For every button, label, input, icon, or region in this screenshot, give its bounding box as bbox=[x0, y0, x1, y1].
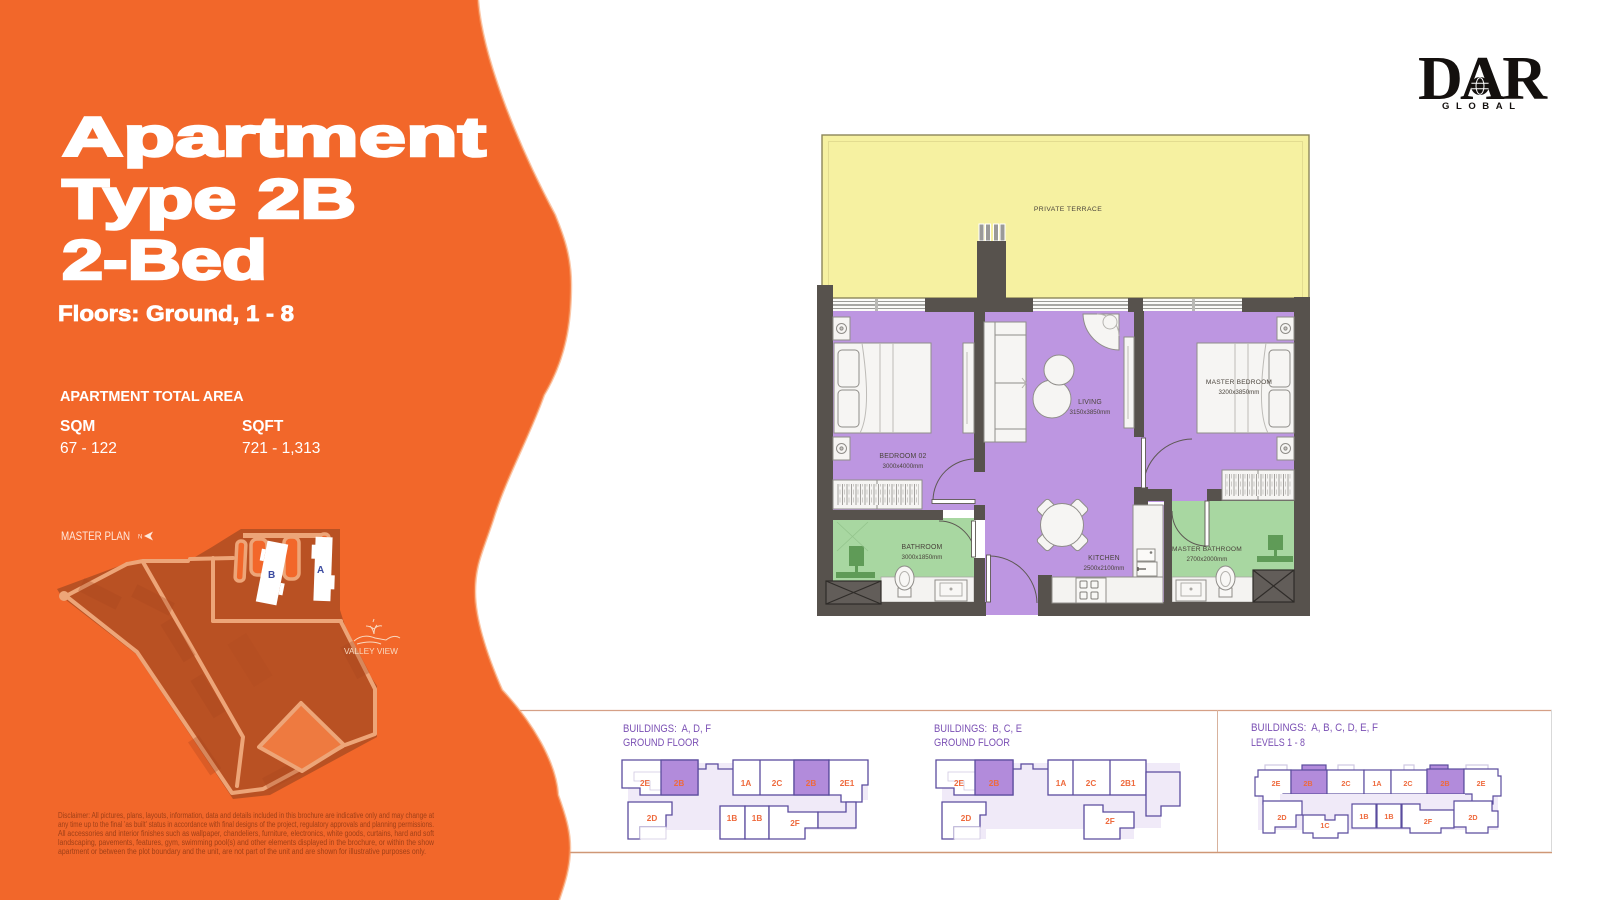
svg-text:LEVELS 1 - 8: LEVELS 1 - 8 bbox=[1251, 737, 1305, 749]
svg-text:2700x2000mm: 2700x2000mm bbox=[1187, 556, 1228, 563]
svg-text:VALLEY VIEW: VALLEY VIEW bbox=[344, 646, 398, 656]
svg-text:2D: 2D bbox=[1468, 813, 1477, 822]
svg-text:721 - 1,313: 721 - 1,313 bbox=[242, 440, 320, 457]
svg-text:1B: 1B bbox=[1384, 812, 1393, 821]
svg-text:BUILDINGS: A, D, F: BUILDINGS: A, D, F bbox=[623, 723, 711, 735]
svg-text:GROUND FLOOR: GROUND FLOOR bbox=[934, 737, 1010, 749]
svg-text:BATHROOM: BATHROOM bbox=[902, 544, 943, 551]
svg-text:1B: 1B bbox=[1359, 812, 1368, 821]
svg-text:BUILDINGS: A, B, C, D, E, F: BUILDINGS: A, B, C, D, E, F bbox=[1251, 722, 1378, 734]
svg-text:2500x2100mm: 2500x2100mm bbox=[1084, 565, 1125, 572]
svg-text:2E: 2E bbox=[640, 779, 651, 788]
svg-text:apartment or between the plot: apartment or between the plot boundary a… bbox=[58, 847, 426, 856]
svg-text:any time up to the final 'as b: any time up to the final 'as built' stat… bbox=[58, 820, 434, 829]
svg-text:MASTER BEDROOM: MASTER BEDROOM bbox=[1206, 379, 1272, 386]
svg-text:BUILDINGS: B, C, E: BUILDINGS: B, C, E bbox=[934, 723, 1022, 735]
svg-text:1C: 1C bbox=[1320, 821, 1329, 830]
svg-text:MASTER PLAN: MASTER PLAN bbox=[61, 529, 130, 543]
svg-text:MASTER BATHROOM: MASTER BATHROOM bbox=[1172, 546, 1242, 553]
svg-text:67 - 122: 67 - 122 bbox=[60, 440, 117, 457]
svg-text:SQFT: SQFT bbox=[242, 418, 284, 435]
svg-text:BEDROOM 02: BEDROOM 02 bbox=[879, 453, 926, 460]
svg-text:2F: 2F bbox=[1105, 817, 1115, 826]
svg-text:KITCHEN: KITCHEN bbox=[1088, 555, 1120, 562]
svg-text:B: B bbox=[268, 570, 275, 581]
svg-text:Type 2B: Type 2B bbox=[62, 167, 356, 230]
svg-text:3150x3850mm: 3150x3850mm bbox=[1070, 409, 1111, 416]
svg-text:LIVING: LIVING bbox=[1078, 399, 1102, 406]
svg-text:3200x3850mm: 3200x3850mm bbox=[1219, 389, 1260, 396]
svg-text:2C: 2C bbox=[1341, 779, 1350, 788]
svg-text:2E1: 2E1 bbox=[840, 779, 855, 788]
svg-text:2E: 2E bbox=[954, 779, 965, 788]
svg-text:2B: 2B bbox=[806, 779, 817, 788]
svg-text:1A: 1A bbox=[741, 779, 752, 788]
svg-text:Apartment: Apartment bbox=[62, 105, 486, 168]
svg-text:2F: 2F bbox=[790, 819, 800, 828]
svg-text:N: N bbox=[138, 535, 142, 541]
svg-text:2E: 2E bbox=[1477, 779, 1486, 788]
svg-text:2D: 2D bbox=[961, 814, 972, 823]
svg-text:1B: 1B bbox=[727, 814, 738, 823]
svg-text:2B: 2B bbox=[989, 779, 1000, 788]
svg-text:2C: 2C bbox=[772, 779, 783, 788]
svg-text:Floors: Ground, 1 - 8: Floors: Ground, 1 - 8 bbox=[58, 301, 294, 326]
svg-text:3000x4000mm: 3000x4000mm bbox=[883, 463, 924, 470]
svg-text:2B1: 2B1 bbox=[1120, 779, 1135, 788]
svg-text:Disclaimer: All pictures, plan: Disclaimer: All pictures, plans, layouts… bbox=[58, 811, 435, 820]
svg-text:All accessories and interior f: All accessories and interior finishes su… bbox=[58, 829, 435, 838]
svg-text:2-Bed: 2-Bed bbox=[62, 228, 267, 291]
svg-text:PRIVATE TERRACE: PRIVATE TERRACE bbox=[1034, 206, 1102, 213]
svg-text:2B: 2B bbox=[1303, 779, 1312, 788]
svg-text:2F: 2F bbox=[1424, 817, 1433, 826]
svg-text:2C: 2C bbox=[1403, 779, 1412, 788]
svg-text:2B: 2B bbox=[674, 779, 685, 788]
svg-text:SQM: SQM bbox=[60, 418, 95, 435]
svg-text:1B: 1B bbox=[752, 814, 763, 823]
svg-text:3000x1850mm: 3000x1850mm bbox=[902, 554, 943, 561]
svg-text:2C: 2C bbox=[1086, 779, 1097, 788]
svg-text:APARTMENT TOTAL AREA: APARTMENT TOTAL AREA bbox=[60, 389, 244, 405]
svg-text:1A: 1A bbox=[1056, 779, 1067, 788]
svg-text:1A: 1A bbox=[1372, 779, 1381, 788]
svg-text:2E: 2E bbox=[1272, 779, 1281, 788]
svg-text:2D: 2D bbox=[647, 814, 658, 823]
svg-text:2D: 2D bbox=[1277, 813, 1286, 822]
svg-text:A: A bbox=[317, 565, 324, 576]
svg-text:2B: 2B bbox=[1440, 779, 1449, 788]
svg-text:landscaping, pavements, featur: landscaping, pavements, features, gym, s… bbox=[58, 838, 434, 847]
svg-text:GROUND FLOOR: GROUND FLOOR bbox=[623, 737, 699, 749]
